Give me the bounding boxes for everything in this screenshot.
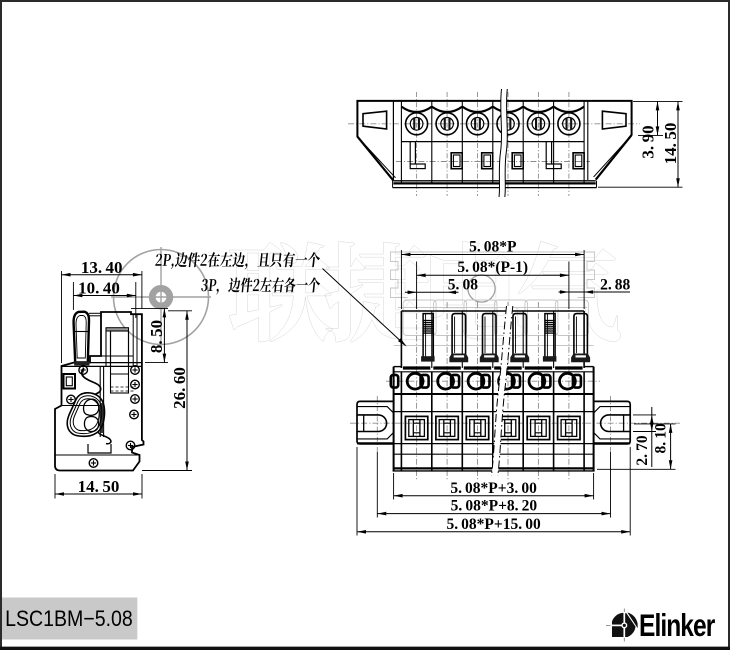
svg-text:5. 08*P: 5. 08*P: [469, 239, 517, 256]
svg-text:5. 08*P+8. 20: 5. 08*P+8. 20: [451, 498, 538, 515]
svg-text:5. 08*P+3. 00: 5. 08*P+3. 00: [450, 480, 537, 497]
svg-text:Elinker: Elinker: [639, 607, 715, 643]
svg-text:14. 50: 14. 50: [661, 123, 680, 165]
svg-text:2. 70: 2. 70: [634, 435, 651, 465]
svg-text:8. 10: 8. 10: [653, 423, 670, 453]
svg-text:3. 90: 3. 90: [639, 125, 658, 158]
svg-text:5. 08: 5. 08: [448, 277, 478, 294]
svg-text:13. 40: 13. 40: [81, 258, 123, 277]
svg-text:14. 50: 14. 50: [78, 477, 120, 496]
svg-text:8. 50: 8. 50: [147, 320, 166, 353]
svg-text:LSC1BM−5.08: LSC1BM−5.08: [5, 607, 133, 631]
svg-text:5. 08*P+15. 00: 5. 08*P+15. 00: [446, 516, 541, 533]
svg-text:26. 60: 26. 60: [170, 367, 189, 409]
svg-text:2. 88: 2. 88: [600, 276, 630, 293]
svg-text:10. 40: 10. 40: [78, 279, 120, 298]
svg-text:5. 08*(P-1): 5. 08*(P-1): [457, 259, 528, 276]
